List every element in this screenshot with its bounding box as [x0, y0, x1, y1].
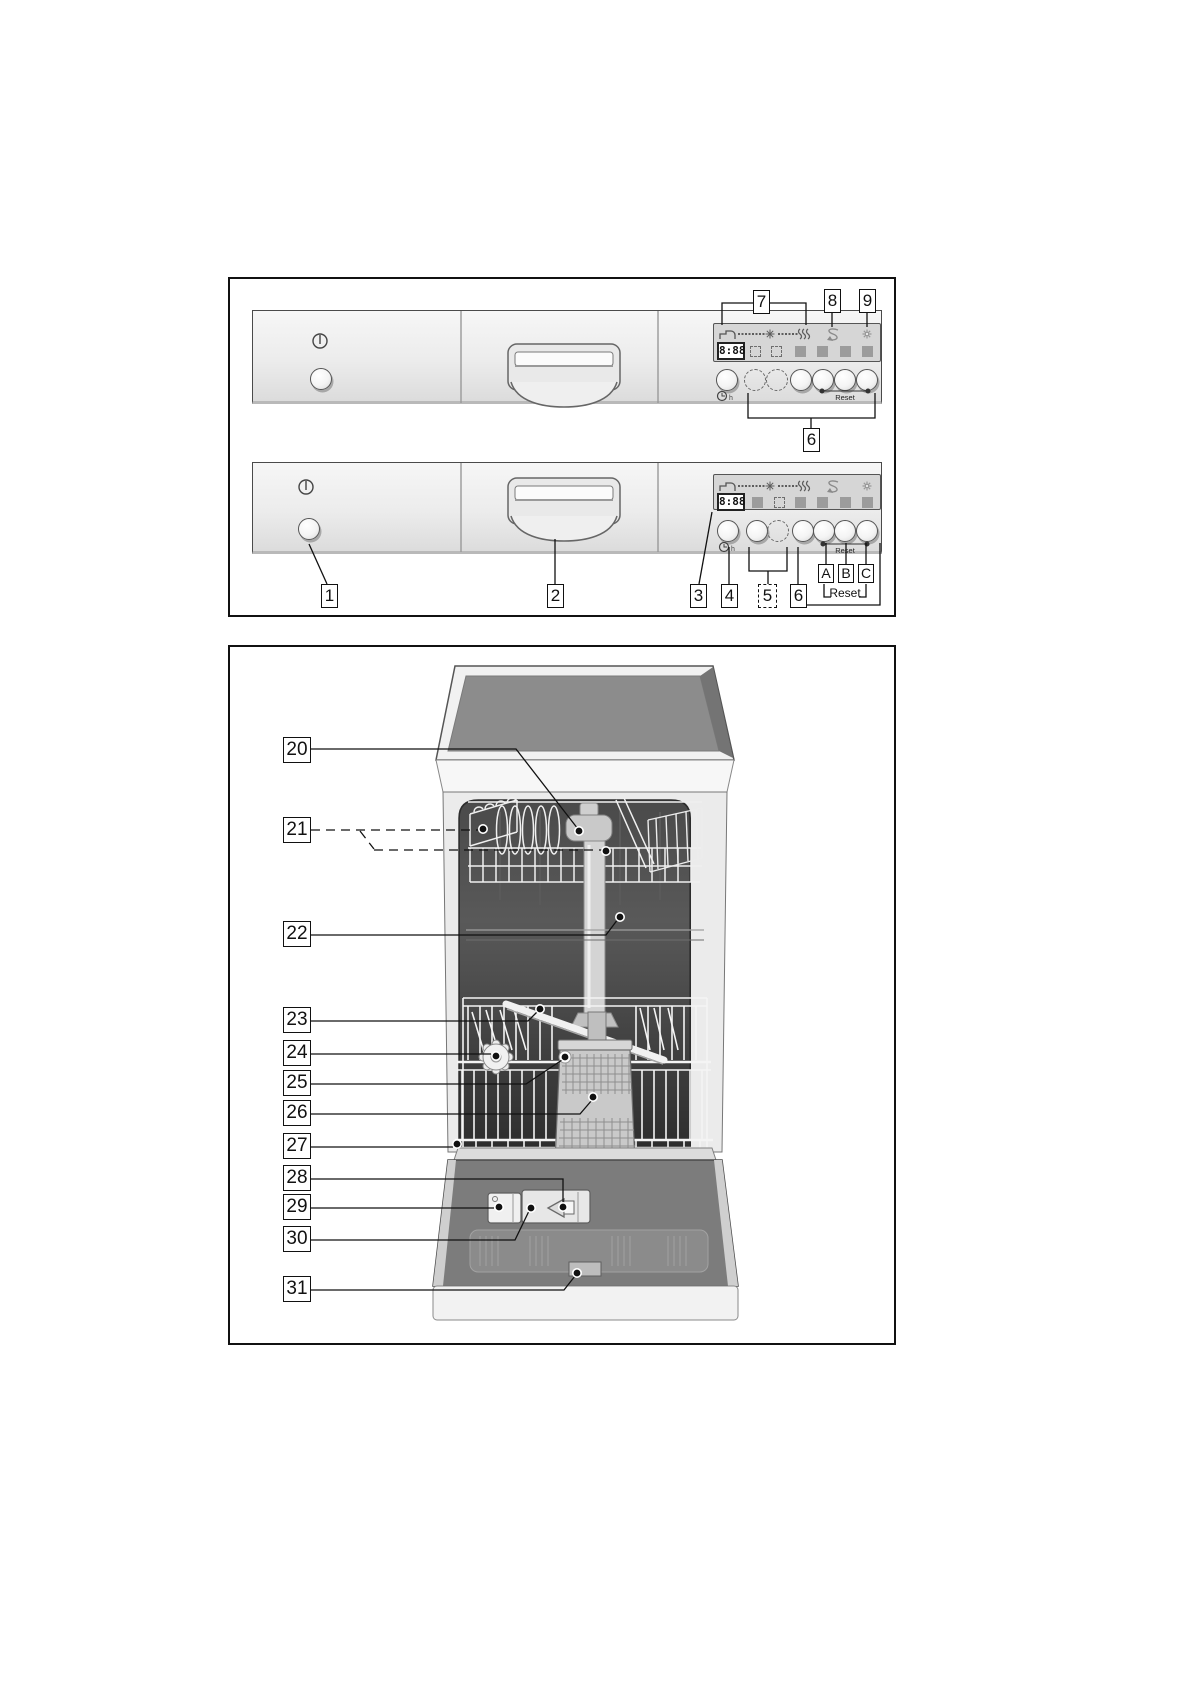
basket-wheel [453, 1166, 469, 1182]
callout-6: 6 [803, 428, 820, 452]
program-button [856, 369, 878, 391]
indicator-square [774, 497, 785, 508]
callout-b: B [838, 564, 854, 583]
callout-22: 22 [283, 921, 311, 947]
option-button [766, 369, 788, 391]
door-molding [470, 1230, 708, 1272]
power-button [298, 518, 320, 540]
callout-28: 28 [283, 1165, 311, 1191]
callout-26: 26 [283, 1100, 311, 1126]
time-delay-button [717, 520, 739, 542]
indicator-square [840, 497, 851, 508]
callout-31: 31 [283, 1276, 311, 1302]
option-button [744, 369, 766, 391]
program-button-b [834, 520, 856, 542]
time-display: 8:88 [717, 493, 745, 511]
callout-4: 4 [721, 584, 738, 608]
callout-25: 25 [283, 1070, 311, 1096]
callout-9: 9 [859, 289, 876, 313]
program-button [792, 520, 814, 542]
indicator-square [840, 346, 851, 357]
indicator-square [795, 497, 806, 508]
callout-5: 5 [758, 584, 777, 608]
indicator-square [817, 346, 828, 357]
indicator-square [752, 497, 763, 508]
callout-29: 29 [283, 1194, 311, 1220]
reset-label: Reset [823, 393, 867, 402]
callout-target-dots [453, 825, 624, 1277]
indicator-square [795, 346, 806, 357]
callout-21: 21 [283, 817, 311, 843]
callout-2: 2 [547, 584, 564, 608]
callout-20: 20 [283, 737, 311, 763]
program-button [790, 369, 812, 391]
callout-c: C [858, 564, 874, 583]
program-button-c [856, 520, 878, 542]
callout-leader-lines [311, 749, 618, 1290]
indicator-square [750, 346, 761, 357]
manual-page: 8:88 8:88 [0, 0, 1190, 1684]
knife-shelf [506, 1004, 664, 1064]
callout-24: 24 [283, 1040, 311, 1066]
callout-7: 7 [753, 290, 770, 314]
folding-rack [648, 808, 702, 872]
salt-cap [479, 1040, 513, 1074]
door-front-edge [433, 1286, 738, 1320]
program-button [812, 369, 834, 391]
indicator-square [817, 497, 828, 508]
option-button [767, 520, 789, 542]
dishwasher-drawing [230, 647, 894, 1343]
display-panel-bottom: 8:88 [713, 474, 881, 510]
lower-basket [455, 998, 713, 1166]
callout-6b: 6 [790, 584, 807, 608]
indicator-square [862, 497, 873, 508]
tub-interior [453, 798, 713, 1185]
callout-3: 3 [690, 584, 707, 608]
program-button-a [813, 520, 835, 542]
reset-abc-label: Reset [815, 586, 875, 600]
time-display: 8:88 [717, 342, 745, 360]
figure-control-panels: 8:88 8:88 [228, 277, 896, 617]
basket-wheel [697, 1166, 713, 1182]
open-door [433, 1148, 738, 1320]
back-wall-ribs [500, 810, 660, 905]
indicator-square [862, 346, 873, 357]
cup-shelf [470, 798, 517, 846]
upper-basket [468, 798, 702, 882]
door-lock [569, 1262, 601, 1276]
program-button [834, 369, 856, 391]
reset-label: Reset [823, 546, 867, 555]
callout-30: 30 [283, 1226, 311, 1252]
callout-27: 27 [283, 1133, 311, 1159]
option-button [746, 520, 768, 542]
time-delay-button [716, 369, 738, 391]
callout-23: 23 [283, 1007, 311, 1033]
figure-dishwasher-interior: 20 21 22 23 24 25 26 27 28 29 30 31 [228, 645, 896, 1345]
spray-ball [559, 1051, 571, 1063]
cabinet [436, 666, 734, 1152]
power-button [310, 368, 332, 390]
display-panel-top: 8:88 [713, 323, 881, 362]
callout-a: A [818, 564, 834, 583]
cutlery-basket [554, 1012, 637, 1185]
detergent-dispenser [488, 1190, 590, 1223]
callout-8: 8 [824, 289, 841, 313]
spray-pipe-column [566, 803, 618, 1027]
indicator-square [771, 346, 782, 357]
callout-1: 1 [321, 584, 338, 608]
